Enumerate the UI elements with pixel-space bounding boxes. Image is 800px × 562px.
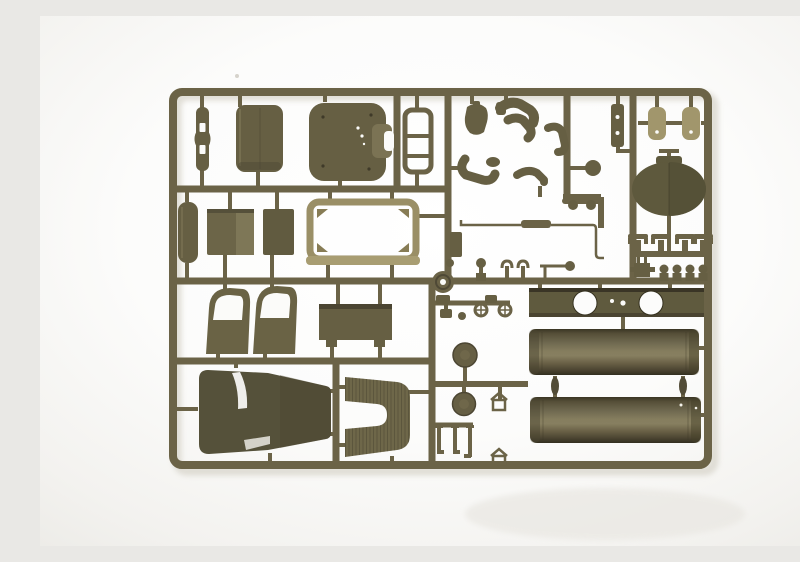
cab-roof-windshield: [199, 370, 331, 454]
spring-clip-left: [648, 107, 666, 140]
narrow-bracket: [195, 107, 211, 171]
door-left: [206, 288, 250, 354]
mounting-pins: [435, 425, 474, 458]
tank-strap-plate: [529, 288, 704, 317]
tank-cap-disc-lower: [453, 393, 476, 416]
seat-back-panel: [236, 105, 283, 172]
sprue-photo: Studio photograph of an olive-drab injec…: [40, 16, 800, 546]
roof-panel: [309, 103, 394, 181]
door-right: [253, 286, 297, 354]
dust-speck: [235, 74, 239, 78]
small-side-panel: [450, 232, 462, 257]
background-smudge: [465, 488, 745, 540]
square-panel-large: [207, 209, 254, 255]
spring-clip-right: [682, 107, 700, 140]
tank-connector-left: [551, 377, 559, 395]
tank-cap-disc-upper: [453, 343, 477, 367]
square-panel-small: [263, 209, 294, 255]
tank-half-lower: [530, 397, 701, 443]
tank-half-upper: [529, 329, 699, 375]
running-board: [178, 202, 198, 263]
sprue-scene: [40, 16, 800, 546]
ball-knob: [585, 160, 601, 176]
drilled-strip: [611, 104, 624, 147]
tank-connector-right: [679, 377, 687, 395]
pulley-disc: [432, 271, 454, 293]
